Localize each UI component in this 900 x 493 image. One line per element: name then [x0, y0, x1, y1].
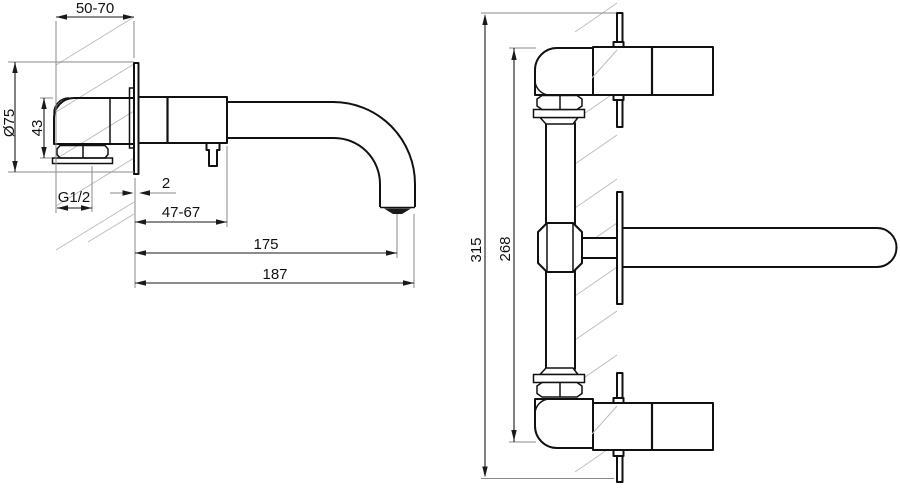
top-valve-assembly	[534, 48, 594, 124]
spout-side	[227, 102, 415, 214]
wall-hatching-left	[56, 17, 134, 250]
bottom-taper	[540, 368, 578, 375]
inlet-elbow	[54, 98, 134, 144]
inlet-base-flange	[53, 158, 113, 164]
dim-escutcheon-thickness-label: 2	[162, 175, 170, 192]
dim-body-projection-label: 47-67	[162, 204, 200, 221]
fixing-screw	[207, 143, 220, 166]
bottom-valve-assembly	[534, 368, 594, 448]
dim-thread-size-label: G1/2	[58, 189, 91, 206]
spout-connector	[582, 238, 618, 258]
inlet-thread-nut	[53, 146, 113, 164]
top-collar	[534, 110, 585, 118]
side-view: 50-70 Ø75 43 G1/2 2 47-67 175 187	[1, 0, 415, 288]
aerator-tip	[384, 209, 411, 215]
top-elbow	[535, 48, 593, 95]
faucet-body	[139, 97, 228, 166]
bottom-elbow	[535, 399, 593, 448]
escutcheon-plate-middle	[617, 192, 623, 304]
dim-valve-distance-label: 268	[497, 236, 514, 261]
bottom-handle	[593, 403, 713, 450]
spout-front	[620, 228, 897, 267]
dim-wall-depth-label: 50-70	[76, 0, 114, 17]
dim-total-projection-label: 187	[262, 266, 287, 283]
dim-total-height-label: 315	[468, 237, 485, 262]
top-handle	[593, 47, 713, 95]
dim-escutcheon-diameter-label: Ø75	[1, 109, 18, 137]
top-taper	[540, 118, 578, 125]
technical-drawing-page: 50-70 Ø75 43 G1/2 2 47-67 175 187	[0, 0, 900, 493]
faucet-dimension-drawing: 50-70 Ø75 43 G1/2 2 47-67 175 187	[0, 0, 900, 493]
spout-tee-fitting	[538, 223, 582, 272]
bottom-collar	[534, 375, 585, 383]
dim-spout-reach-label: 175	[253, 236, 278, 253]
front-view: 315 268	[468, 3, 897, 482]
dim-inlet-height-label: 43	[29, 120, 46, 137]
